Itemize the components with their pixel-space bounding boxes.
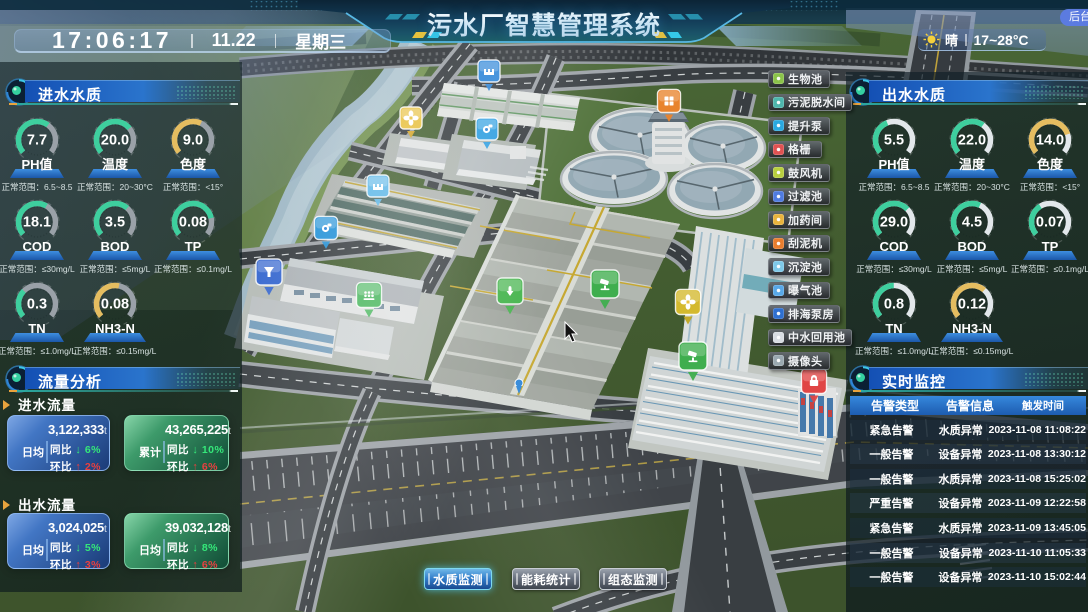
svg-text:0.07: 0.07: [1036, 215, 1064, 231]
svg-text:7.7: 7.7: [27, 133, 47, 149]
svg-text:0.08: 0.08: [101, 297, 129, 313]
svg-text:4.5: 4.5: [962, 215, 982, 231]
svg-text:0.8: 0.8: [884, 297, 904, 313]
svg-text:9.0: 9.0: [183, 133, 203, 149]
svg-text:14.0: 14.0: [1036, 133, 1064, 149]
svg-text:3.5: 3.5: [105, 215, 125, 231]
svg-text:5.5: 5.5: [884, 133, 904, 149]
svg-text:0.3: 0.3: [27, 297, 47, 313]
svg-text:0.12: 0.12: [958, 297, 986, 313]
svg-text:18.1: 18.1: [23, 215, 51, 231]
svg-text:0.08: 0.08: [179, 215, 207, 231]
svg-text:22.0: 22.0: [958, 133, 986, 149]
svg-text:29.0: 29.0: [880, 215, 908, 231]
svg-text:20.0: 20.0: [101, 133, 129, 149]
